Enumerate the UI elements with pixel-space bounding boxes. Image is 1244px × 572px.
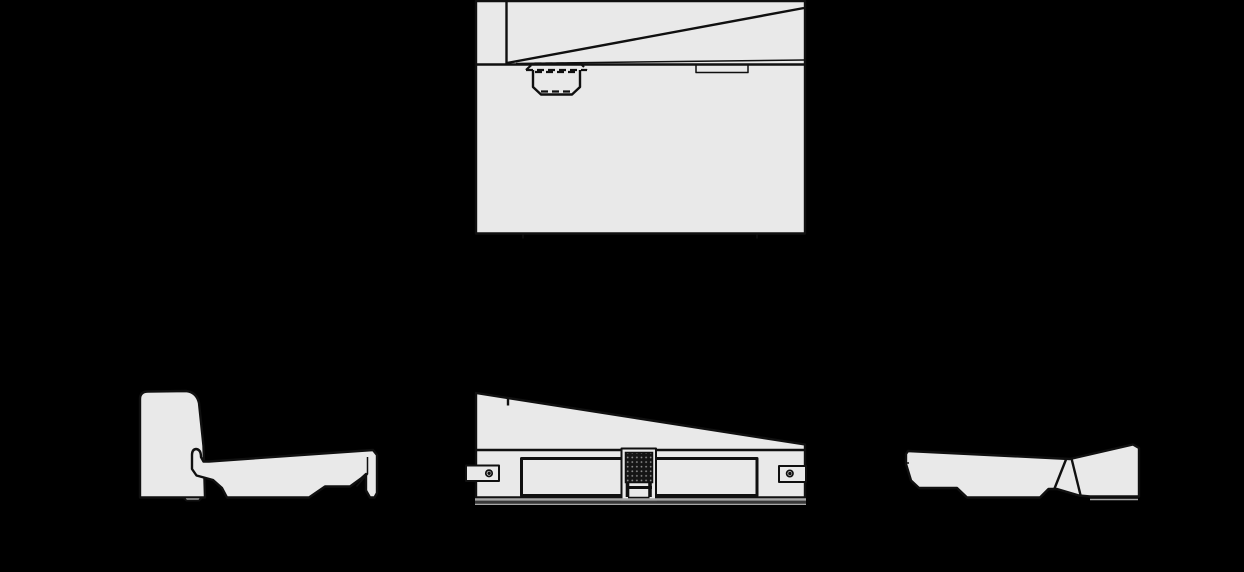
left-skid-outline: [192, 449, 377, 498]
right-skid-outline: [906, 445, 1139, 498]
technical-drawing: [0, 0, 1244, 572]
side-view-left: [140, 391, 377, 501]
left-backrest-foot: [183, 498, 202, 501]
left-backrest-outline: [140, 391, 205, 498]
front-connector-hatched-block: [626, 453, 653, 483]
front-view: [466, 393, 806, 504]
drawing-canvas: [0, 0, 1244, 572]
plan-body-outline: [476, 1, 805, 234]
side-view-right: [906, 445, 1140, 500]
front-left-mount-tab: [466, 466, 499, 482]
plan-view: [476, 1, 805, 239]
